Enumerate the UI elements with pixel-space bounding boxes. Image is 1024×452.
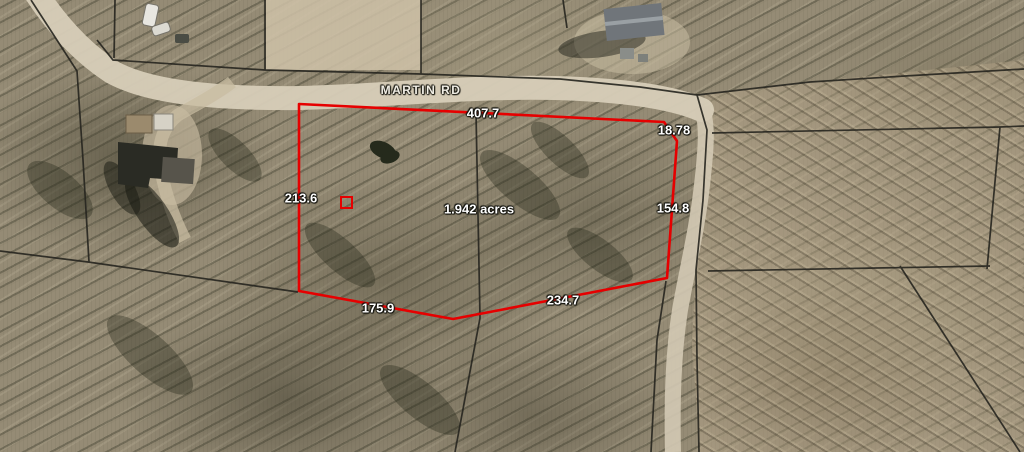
- parcel-line: [708, 266, 990, 271]
- parcel-boundary[interactable]: [299, 104, 677, 319]
- outbuilding: [638, 54, 648, 62]
- parcel-point-marker[interactable]: [341, 197, 352, 208]
- vehicle-white: [142, 3, 159, 27]
- house-roof: [161, 157, 195, 184]
- house-roof: [126, 115, 152, 133]
- parcel-line: [114, 0, 115, 58]
- tree-blob: [367, 137, 402, 166]
- road-edge-line: [651, 281, 666, 452]
- parcel-line: [0, 251, 298, 292]
- house-roof-white: [154, 114, 173, 130]
- south-road-surface: [673, 108, 706, 452]
- parcel-line: [987, 127, 1000, 269]
- aerial-parcel-map[interactable]: MARTIN RD 407.7 18.78 213.6 154.8 175.9 …: [0, 0, 1024, 452]
- map-overlay: [0, 0, 1024, 452]
- cleared-field: [266, 0, 421, 70]
- interior-lot-line: [455, 112, 480, 452]
- outbuilding: [620, 48, 634, 59]
- parcel-line: [563, 0, 567, 28]
- parcel-line: [900, 266, 1020, 452]
- vehicles: [142, 3, 189, 43]
- vehicle-dark: [175, 34, 189, 43]
- parcel-line: [712, 126, 1024, 133]
